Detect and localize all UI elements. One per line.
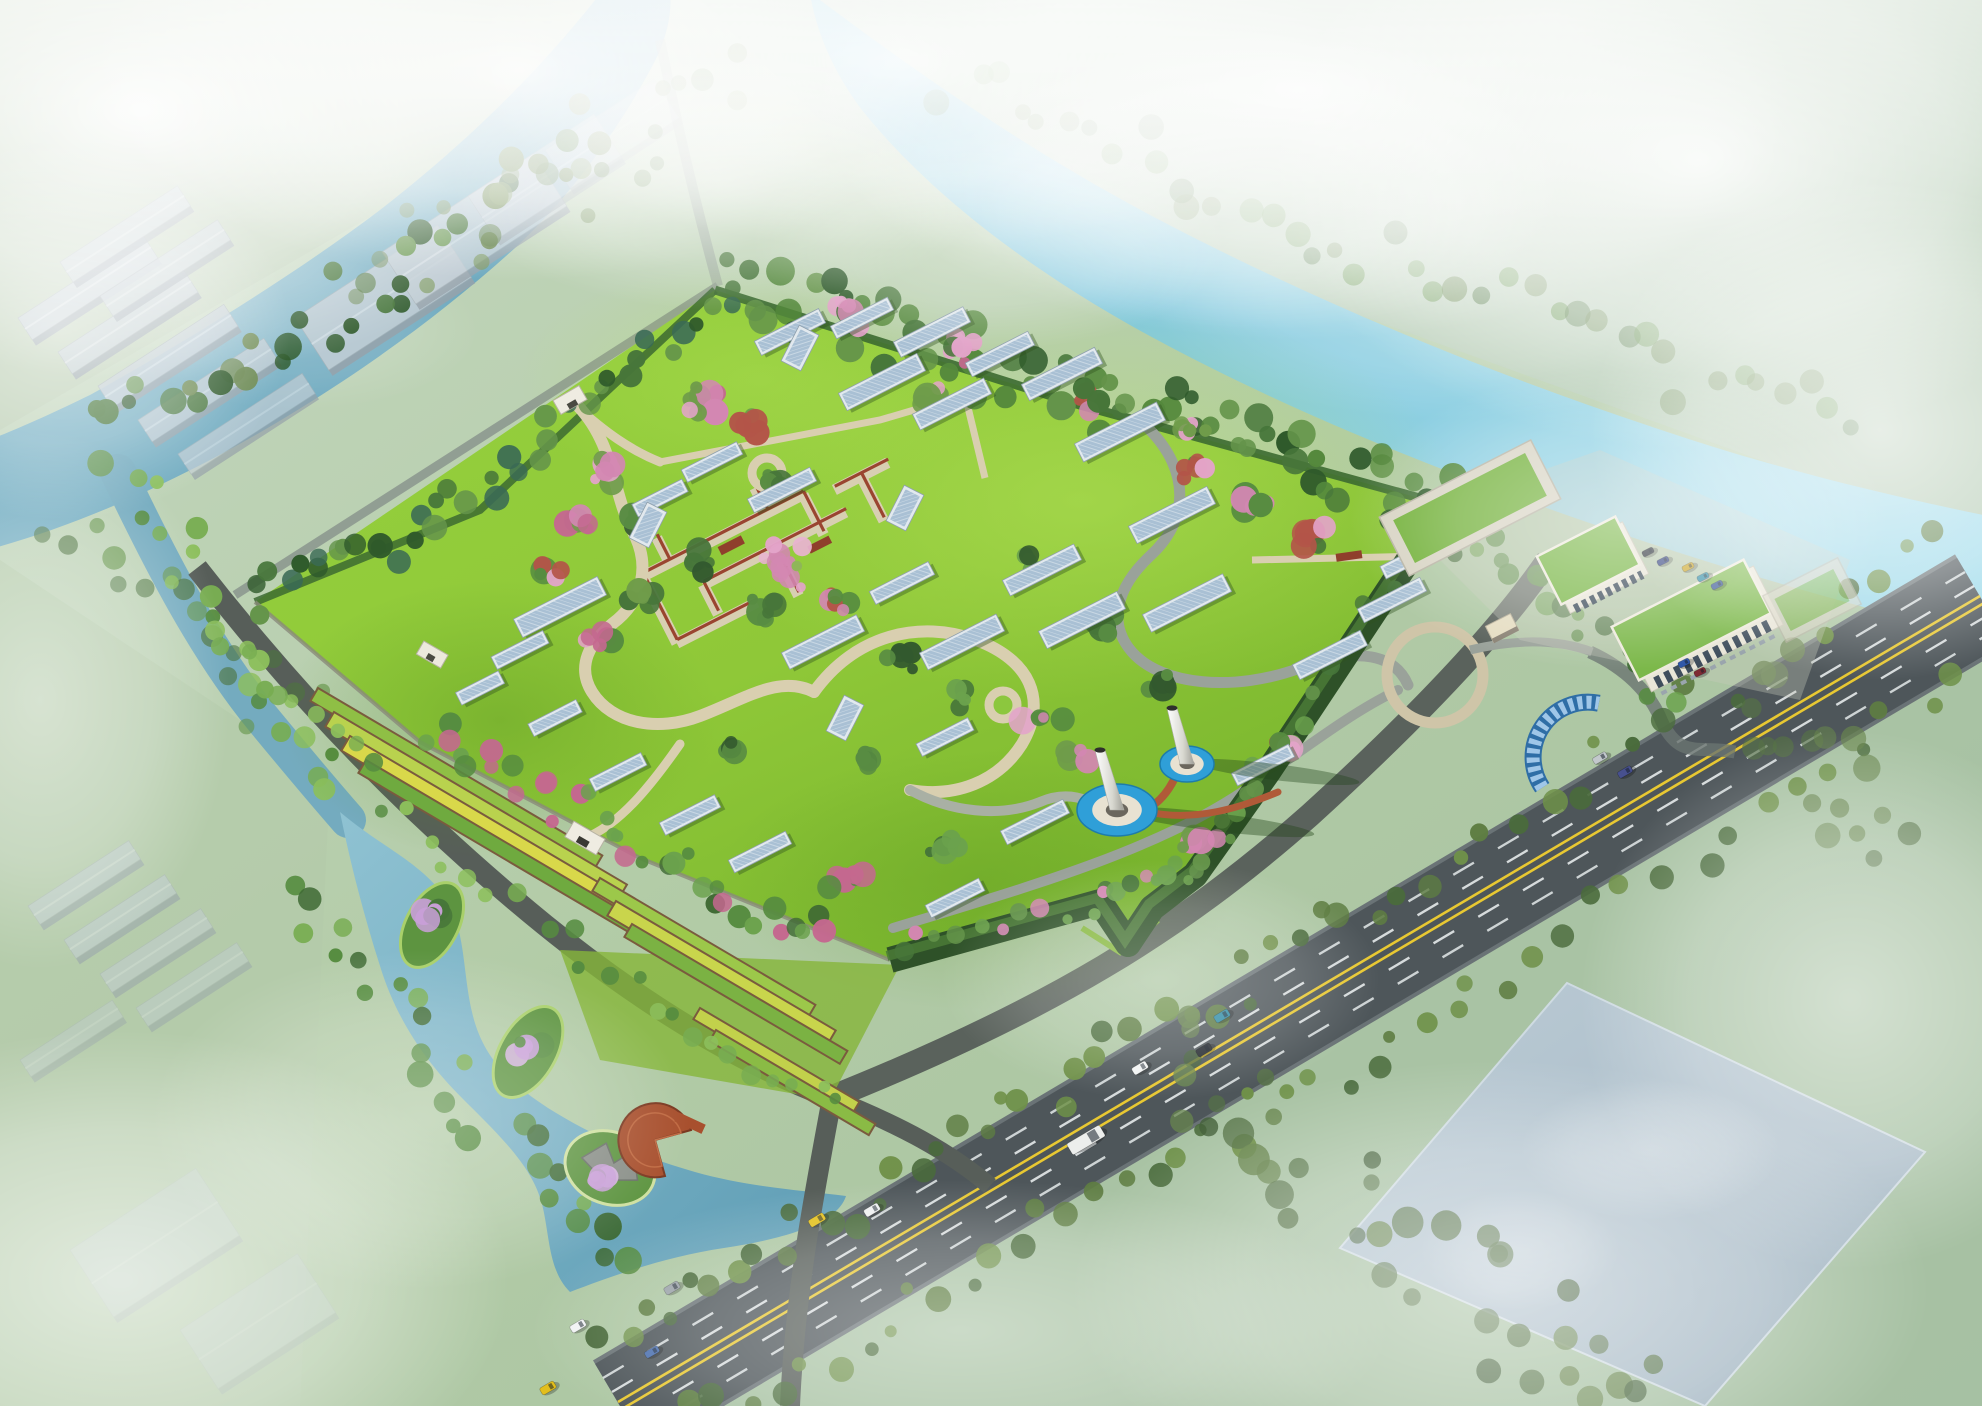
tree (1238, 439, 1256, 457)
tree (565, 919, 584, 938)
tree (650, 1003, 667, 1020)
tree (912, 1158, 936, 1182)
tree (298, 887, 322, 911)
tree (257, 561, 277, 581)
tree (1587, 736, 1599, 748)
tree (368, 533, 393, 558)
tree (364, 753, 383, 772)
tree (741, 1065, 761, 1085)
tree (1869, 701, 1887, 719)
tree (599, 370, 616, 387)
tree (682, 847, 695, 860)
tree (763, 897, 786, 920)
tree (1457, 975, 1473, 991)
tree (635, 330, 654, 349)
tree (611, 830, 623, 842)
tree (454, 755, 476, 777)
tree (478, 888, 493, 903)
tree (546, 815, 559, 828)
tree (437, 479, 457, 499)
plant-blob (534, 568, 546, 580)
tree (1454, 850, 1468, 864)
plant-blob (1177, 471, 1191, 485)
tree (1282, 448, 1308, 474)
tree (1666, 692, 1687, 713)
tree (502, 755, 524, 777)
tree (710, 880, 725, 895)
plant-blob (770, 556, 792, 578)
plant-blob (792, 561, 803, 572)
tree (1170, 1110, 1193, 1133)
top-haze (0, 0, 1982, 230)
tree (349, 736, 365, 752)
plant-blob (942, 830, 961, 849)
plant-blob (837, 604, 849, 616)
plant-blob (1291, 533, 1317, 559)
tree (480, 739, 503, 762)
tree (634, 971, 647, 984)
tree (813, 919, 837, 943)
plant-blob (1051, 707, 1075, 731)
tree (454, 490, 478, 514)
fog-cloud (940, 860, 1380, 1100)
tower-top-opening (1167, 705, 1178, 710)
plant-blob (879, 649, 896, 666)
park-masterplan-rendering (0, 0, 1982, 1406)
plant-blob (1019, 545, 1039, 565)
tree (508, 883, 527, 902)
tree (344, 534, 366, 556)
tree (536, 771, 557, 792)
tree (418, 734, 435, 751)
plant-blob (828, 589, 843, 604)
tree (1305, 686, 1320, 701)
plant-blob (765, 536, 782, 553)
tree (1387, 887, 1406, 906)
tree (541, 921, 559, 939)
tree (375, 805, 388, 818)
plant-blob (793, 537, 812, 556)
plant-blob (956, 691, 967, 702)
tree (242, 644, 257, 659)
tree (1927, 698, 1943, 714)
tree (994, 386, 1017, 409)
plant-blob (415, 907, 440, 932)
plant-blob (1038, 712, 1049, 723)
plant-blob (593, 638, 607, 652)
tree (1625, 737, 1640, 752)
tree (689, 317, 703, 331)
tree (497, 445, 521, 469)
tree (239, 719, 255, 735)
tree (600, 811, 615, 826)
tree (1417, 1012, 1438, 1033)
tree (331, 724, 345, 738)
tree (718, 1045, 736, 1063)
tree (908, 926, 923, 941)
tree (334, 918, 353, 937)
plant-blob (725, 736, 738, 749)
tree (534, 405, 557, 428)
plant-blob (1098, 624, 1117, 643)
tree (435, 862, 447, 874)
tree (485, 471, 499, 485)
tree (1450, 1001, 1468, 1019)
plant-blob (817, 875, 841, 899)
tree (458, 869, 476, 887)
plant-blob (1161, 669, 1173, 681)
tree (928, 930, 940, 942)
tree (426, 835, 439, 848)
plant-blob (692, 561, 714, 583)
tree (484, 760, 498, 774)
tree (508, 786, 525, 803)
plant-blob (1313, 516, 1336, 539)
tower-top-opening (1095, 747, 1106, 752)
fog-cloud (150, 950, 690, 1290)
plant-blob (850, 862, 876, 888)
tree (683, 1027, 703, 1047)
tree (1651, 708, 1676, 733)
tree (1259, 426, 1275, 442)
tree (1551, 924, 1574, 947)
tree (1101, 374, 1118, 391)
tree (940, 363, 959, 382)
tree (1225, 834, 1235, 844)
tree (387, 550, 411, 574)
tree (601, 967, 619, 985)
tree (422, 515, 448, 541)
aerial-rendering-stage (0, 0, 1982, 1406)
plant-blob (1165, 682, 1176, 693)
tree (1325, 488, 1350, 513)
tree (895, 942, 915, 962)
tree (615, 846, 636, 867)
tree (627, 350, 645, 368)
plant-blob (1249, 493, 1273, 517)
tree (291, 555, 309, 573)
tree (1418, 875, 1441, 898)
tree (1470, 823, 1488, 841)
tree (308, 706, 325, 723)
tree (529, 449, 551, 471)
tree (981, 1125, 996, 1140)
scene-root (0, 0, 1982, 1406)
tree (928, 1141, 943, 1156)
fog-cloud (1350, 370, 1890, 670)
tree (406, 532, 423, 549)
tree (1543, 789, 1568, 814)
tree (293, 923, 313, 943)
tree (1383, 1031, 1395, 1043)
tree (1521, 946, 1543, 968)
tree (1499, 981, 1517, 999)
plant-blob (600, 452, 626, 478)
tree (662, 852, 685, 875)
plant-blob (1174, 416, 1189, 431)
tree (946, 1115, 969, 1138)
plant-blob (1199, 424, 1212, 437)
tree (879, 1156, 902, 1179)
tree (819, 1081, 831, 1093)
tree (1185, 390, 1199, 404)
tree (484, 486, 509, 511)
tree (749, 305, 778, 334)
tree (250, 605, 269, 624)
plant-blob (682, 402, 698, 418)
tree (1220, 400, 1240, 420)
plant-blob (765, 593, 783, 611)
tree (704, 1036, 718, 1050)
tree (713, 893, 732, 912)
plant-blob (729, 412, 751, 434)
tree (1581, 885, 1600, 904)
tree (438, 730, 460, 752)
tree (766, 1074, 779, 1087)
tree (1569, 787, 1592, 810)
plant-blob (1195, 458, 1215, 478)
tree (268, 686, 288, 706)
tree (1741, 698, 1761, 718)
tree (572, 961, 585, 974)
tree (795, 924, 810, 939)
tree (310, 549, 328, 567)
tree (1115, 394, 1135, 414)
tree (636, 856, 649, 869)
tree (1288, 420, 1316, 448)
tree (1509, 814, 1529, 834)
tree (1005, 1089, 1028, 1112)
plant-blob (1087, 390, 1110, 413)
tree (1295, 716, 1314, 735)
plant-blob (859, 757, 877, 775)
plant-blob (1188, 827, 1215, 854)
plant-blob (626, 578, 651, 603)
tree (745, 917, 763, 935)
tree (400, 801, 414, 815)
tree (1208, 1095, 1225, 1112)
tree (785, 1078, 798, 1091)
plant-blob (578, 514, 598, 534)
tree (1373, 910, 1388, 925)
tree (830, 1093, 841, 1104)
tree (665, 344, 682, 361)
tree (1047, 391, 1076, 420)
tree (666, 1007, 679, 1020)
tree (1308, 450, 1325, 467)
plant-blob (552, 561, 570, 579)
plant-blob (690, 381, 702, 393)
tree (994, 1091, 1007, 1104)
tree (1056, 1097, 1077, 1118)
tree (536, 429, 558, 451)
